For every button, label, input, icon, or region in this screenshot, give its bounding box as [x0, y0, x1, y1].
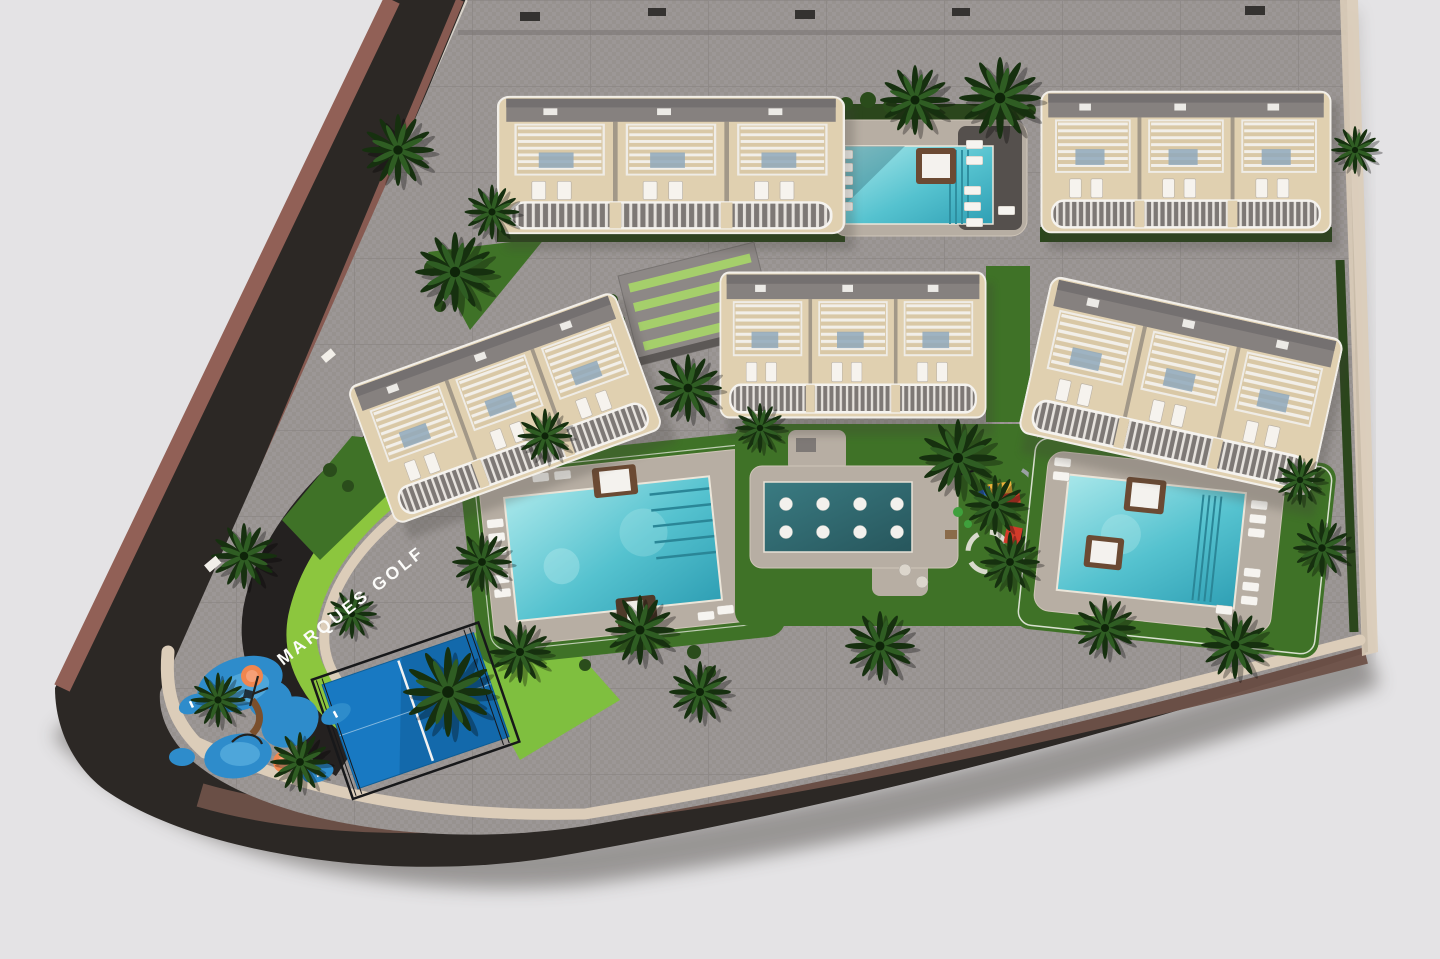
lap-pool [764, 482, 912, 552]
site-plan-render: MARQUES GOLF [0, 0, 1440, 959]
lap-pool-area [735, 424, 1050, 626]
top-pool-area [831, 120, 1027, 236]
building-top-left [498, 97, 854, 251]
building-top-right [1041, 92, 1339, 250]
swimming-pool [504, 476, 722, 621]
site-plan-screenshot: MARQUES GOLF [0, 0, 1440, 959]
